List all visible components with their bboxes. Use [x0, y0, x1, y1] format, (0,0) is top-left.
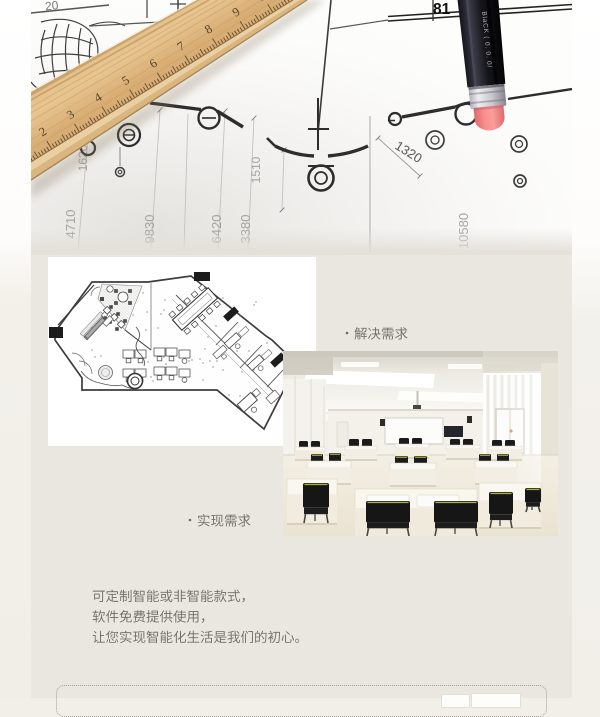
svg-text:81: 81: [433, 1, 451, 18]
svg-text:20: 20: [44, 0, 59, 13]
svg-text:1510: 1510: [249, 156, 263, 183]
